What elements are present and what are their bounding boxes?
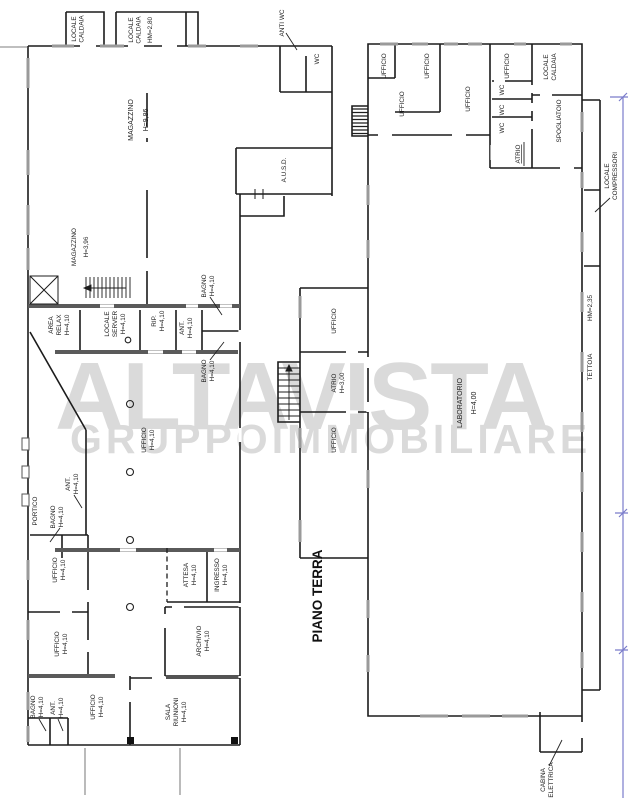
label-line: H=4,10 bbox=[73, 473, 80, 494]
stair-main-arrowhead bbox=[84, 285, 91, 291]
label-rip: RIP. H=4,10 bbox=[151, 310, 166, 331]
label-line: INGRESSO bbox=[214, 558, 221, 592]
page-title: PIANO TERRA bbox=[310, 549, 325, 642]
stair-entry-hatch bbox=[352, 109, 368, 134]
label-line: ANTI WC bbox=[279, 9, 286, 36]
label-ufficio-r5: UFFICIO bbox=[465, 86, 472, 112]
label-archivio: ARCHIVIO H=4,10 bbox=[196, 626, 211, 657]
label-line: H=4,10 bbox=[58, 506, 65, 527]
label-line: MAGAZZINO bbox=[71, 228, 78, 266]
label-ufficio-r1: UFFICIO bbox=[381, 53, 388, 79]
label-line: UFFICIO bbox=[54, 631, 61, 657]
stair-main-lines bbox=[86, 277, 130, 298]
label-line: H=4,10 bbox=[159, 310, 166, 331]
label-line: UFFICIO bbox=[465, 86, 472, 112]
label-line: RIUNIONI bbox=[173, 697, 180, 726]
label-locale-compressori: LOCALE COMPRESSORI bbox=[604, 152, 619, 200]
label-atrio-servizi: ATRIO bbox=[515, 144, 522, 163]
label-laboratorio: LABORATORIO H=4,00 bbox=[457, 377, 478, 427]
label-atrio-annex: ATRIO H=3,00 bbox=[331, 372, 346, 393]
label-ingresso: INGRESSO H=4,10 bbox=[214, 558, 229, 592]
pillar bbox=[127, 737, 134, 744]
label-line: H=3,00 bbox=[339, 372, 346, 393]
label-ufficio-annex-2: UFFICIO bbox=[331, 427, 338, 453]
label-ufficio-annex-1: UFFICIO bbox=[331, 308, 338, 334]
label-ufficio-c: UFFICIO H=4,10 bbox=[90, 694, 105, 720]
walls-left-building bbox=[28, 12, 332, 745]
label-line: BAGNO bbox=[201, 274, 208, 297]
pillar bbox=[231, 737, 238, 744]
label-bagno-4: BAGNO H=4,10 bbox=[30, 695, 45, 718]
label-ufficio-r3: UFFICIO bbox=[504, 53, 511, 79]
label-tettoia-altezza: HM=2,35 bbox=[587, 295, 594, 322]
column-icon bbox=[127, 604, 134, 611]
label-line: RIP. bbox=[151, 315, 158, 327]
label-line: HM=2,80 bbox=[147, 17, 154, 44]
label-line: TETTOIA bbox=[587, 353, 594, 381]
label-attesa: ATTESA H=4,10 bbox=[183, 562, 198, 587]
wall-right-outline bbox=[278, 44, 600, 752]
label-line: ATRIO bbox=[331, 373, 338, 392]
label-portico: PORTICO bbox=[32, 496, 39, 525]
label-locale-server: LOCALE SERVER H=4,10 bbox=[104, 311, 127, 338]
lift-cross-box bbox=[30, 276, 58, 304]
label-line: LOCALE bbox=[128, 17, 135, 42]
label-line: WC bbox=[499, 104, 506, 115]
pier bbox=[22, 466, 29, 478]
label-line: UFFICIO bbox=[381, 53, 388, 79]
label-wc-3: WC bbox=[499, 122, 506, 133]
label-line: H=4,10 bbox=[187, 317, 194, 338]
label-ufficio-r2: UFFICIO bbox=[424, 53, 431, 79]
label-line: H=4,10 bbox=[149, 429, 156, 450]
label-wc-left: WC bbox=[314, 53, 321, 64]
label-line: H=4,10 bbox=[204, 630, 211, 651]
label-line: H=4,10 bbox=[120, 313, 127, 334]
label-line: LOCALE bbox=[104, 311, 111, 336]
label-line: BAGNO bbox=[201, 359, 208, 382]
label-anti-wc: ANTI WC bbox=[279, 9, 286, 36]
label-bagno-3: BAGNO H=4,10 bbox=[50, 505, 65, 528]
label-line: BAGNO bbox=[30, 695, 37, 718]
label-line: UFFICIO bbox=[331, 427, 338, 453]
label-line: LOCALE bbox=[71, 16, 78, 41]
label-line: H=4,10 bbox=[191, 564, 198, 585]
label-locale-caldaia-2: LOCALE CALDAIA HM=2,80 bbox=[128, 16, 154, 44]
label-line: ELETTRICA bbox=[548, 762, 555, 798]
server-symbol bbox=[125, 337, 131, 343]
label-area-relax: AREA RELAX H=4,10 bbox=[48, 314, 71, 336]
label-line: UFFICIO bbox=[424, 53, 431, 79]
label-line: ARCHIVIO bbox=[196, 626, 203, 657]
label-line: ANT. bbox=[179, 321, 186, 335]
walls-right-building bbox=[278, 44, 600, 752]
label-bagno-2: BAGNO H=4,10 bbox=[201, 359, 216, 382]
label-line: LOCALE bbox=[604, 163, 611, 188]
label-line: A.U.S.D. bbox=[281, 157, 288, 182]
label-line: WC bbox=[499, 84, 506, 95]
label-line: H=4,00 bbox=[471, 392, 478, 415]
label-line: H=4,10 bbox=[58, 697, 65, 718]
wall-left-outline bbox=[28, 12, 332, 745]
stair-annex-hatch bbox=[278, 365, 300, 420]
label-line: HM=2,35 bbox=[587, 295, 594, 322]
label-line: H=4,10 bbox=[222, 564, 229, 585]
label-line: ANT. bbox=[65, 477, 72, 491]
label-line: LABORATORIO bbox=[457, 377, 464, 427]
label-ant-1: ANT. H=4,10 bbox=[179, 317, 194, 338]
label-ufficio-open: UFFICIO H=4,10 bbox=[141, 427, 156, 453]
label-line: WC bbox=[499, 122, 506, 133]
pier bbox=[22, 438, 29, 450]
label-locale-caldaia-3: LOCALE CALDAIA bbox=[543, 53, 558, 81]
label-line: WC bbox=[314, 53, 321, 64]
label-line: H=4,10 bbox=[62, 633, 69, 654]
label-line: H=4,10 bbox=[98, 696, 105, 717]
label-line: CALDAIA bbox=[136, 16, 143, 44]
label-line: H=9,86 bbox=[143, 109, 150, 132]
label-line: ANT. bbox=[50, 701, 57, 715]
corner-pillars bbox=[127, 737, 238, 744]
floorplan-drawing: LOCALE CALDAIA LOCALE CALDAIA HM=2,80 AN… bbox=[0, 0, 628, 800]
label-line: ATTESA bbox=[183, 562, 190, 587]
label-line: RELAX bbox=[56, 314, 63, 336]
floorplan-page: ALTAVISTA GRUPPOIMMOBILIARE bbox=[0, 0, 628, 800]
lift-cross-symbol bbox=[30, 276, 58, 304]
column-icon bbox=[127, 537, 134, 544]
label-line: H=4,10 bbox=[209, 275, 216, 296]
pier bbox=[22, 494, 29, 506]
title-text: PIANO TERRA bbox=[310, 549, 325, 642]
label-line: H=4,10 bbox=[38, 696, 45, 717]
label-ufficio-r4: UFFICIO bbox=[399, 91, 406, 117]
label-line: SALA bbox=[165, 703, 172, 720]
label-leader-lines bbox=[39, 33, 610, 766]
label-line: UFFICIO bbox=[504, 53, 511, 79]
label-tettoia: TETTOIA bbox=[587, 353, 594, 381]
label-cabina-elettrica: CABINA ELETTRICA bbox=[540, 762, 555, 798]
porch-piers bbox=[22, 438, 29, 506]
label-line: UFFICIO bbox=[399, 91, 406, 117]
label-line: UFFICIO bbox=[90, 694, 97, 720]
label-line: COMPRESSORI bbox=[612, 152, 619, 200]
column-icon bbox=[127, 401, 134, 408]
label-line: H=4,10 bbox=[60, 559, 67, 580]
label-line: CALDAIA bbox=[79, 15, 86, 43]
label-line: H=4,10 bbox=[64, 314, 71, 335]
label-ufficio-a: UFFICIO H=4,10 bbox=[52, 557, 67, 583]
label-ant-2: ANT. H=4,10 bbox=[65, 473, 80, 494]
label-line: BAGNO bbox=[50, 505, 57, 528]
label-line: H=4,10 bbox=[181, 701, 188, 722]
label-line: CABINA bbox=[540, 767, 547, 792]
label-line: UFFICIO bbox=[141, 427, 148, 453]
label-ausd: A.U.S.D. bbox=[281, 157, 288, 182]
label-line: H=3,96 bbox=[83, 236, 90, 257]
label-ant-3: ANT. H=4,10 bbox=[50, 697, 65, 718]
label-line: LOCALE bbox=[543, 54, 550, 79]
label-line: AREA bbox=[48, 316, 55, 334]
label-line: UFFICIO bbox=[52, 557, 59, 583]
label-sala-riunioni: SALA RIUNIONI H=4,10 bbox=[165, 697, 188, 726]
label-line: UFFICIO bbox=[331, 308, 338, 334]
label-line: SPOGLIATOIO bbox=[556, 99, 563, 142]
label-line: PORTICO bbox=[32, 496, 39, 525]
label-bagno-1: BAGNO H=4,10 bbox=[201, 274, 216, 297]
label-magazzino-piccolo: MAGAZZINO H=3,96 bbox=[71, 228, 90, 266]
label-wc-2: WC bbox=[499, 104, 506, 115]
label-wc-1: WC bbox=[499, 84, 506, 95]
label-line: H=4,10 bbox=[209, 360, 216, 381]
label-line: MAGAZZINO bbox=[128, 99, 135, 141]
label-line: SERVER bbox=[112, 311, 119, 338]
stair-main-hatch bbox=[84, 277, 130, 298]
label-locale-caldaia-1: LOCALE CALDAIA bbox=[71, 15, 86, 43]
label-spogliatoio: SPOGLIATOIO bbox=[556, 99, 563, 142]
label-line: CALDAIA bbox=[551, 53, 558, 81]
label-line: ATRIO bbox=[515, 144, 522, 163]
structural-columns bbox=[125, 337, 133, 610]
label-ufficio-b: UFFICIO H=4,10 bbox=[54, 631, 69, 657]
column-icon bbox=[127, 469, 134, 476]
